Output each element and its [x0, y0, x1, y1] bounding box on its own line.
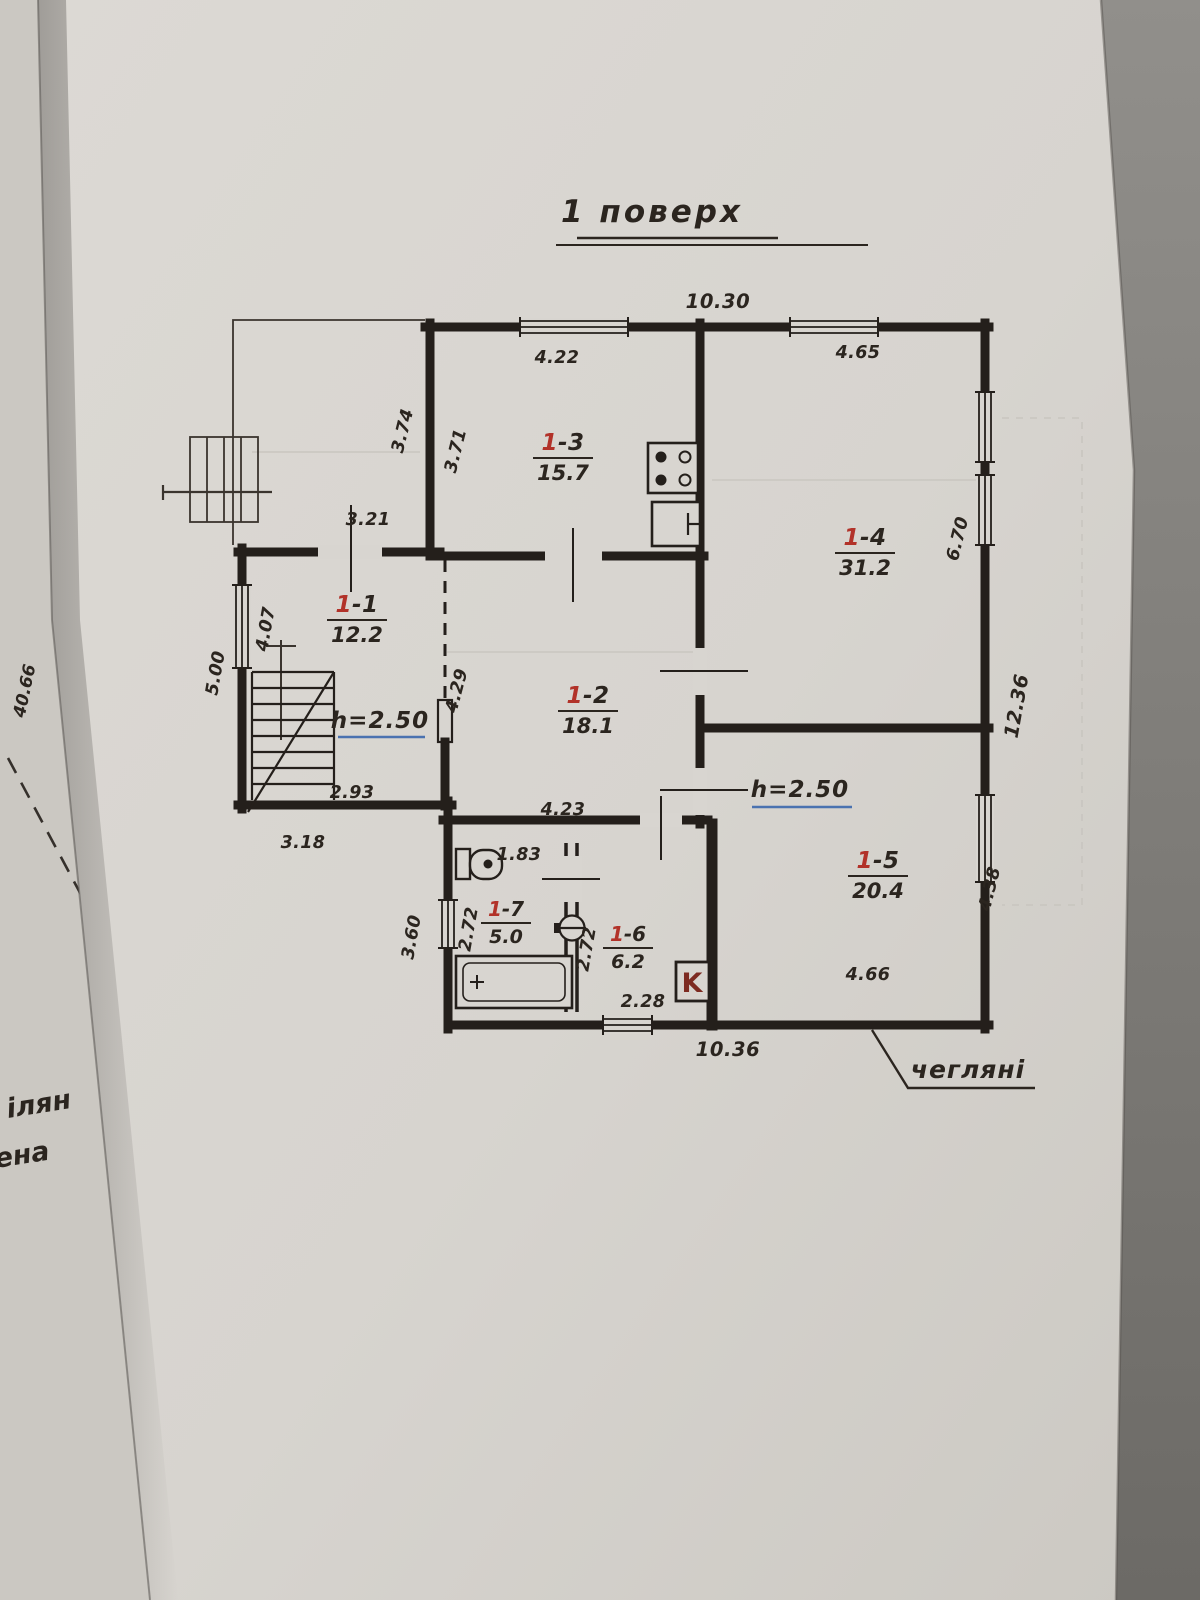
dim-room6-width: 2.28 — [621, 992, 666, 1012]
boiler-letter: K — [682, 968, 704, 999]
room-id: 1-1 — [335, 592, 378, 618]
room-area: 20.4 — [852, 879, 904, 903]
window-room4-right-upper — [975, 392, 995, 462]
dim-room2-width: 4.23 — [540, 800, 586, 820]
window-room4-top — [790, 317, 878, 337]
dim-bath-door: 1.83 — [497, 845, 542, 865]
dim-bottom-total: 10.36 — [696, 1038, 761, 1061]
floor-plan-drawing: 40.66 ілян ена 1 поверх — [0, 0, 1200, 1600]
dim-top-total: 10.30 — [686, 290, 751, 313]
window-room4-right-lower — [975, 475, 995, 545]
room-id: 1-3 — [541, 430, 584, 456]
dim-room1-width: 2.93 — [330, 783, 375, 803]
material-text: чегляні — [911, 1055, 1025, 1084]
room-id: 1-2 — [566, 683, 609, 709]
room-area: 12.2 — [331, 623, 383, 647]
stove-icon — [648, 443, 698, 493]
dim-room3-width: 4.22 — [534, 348, 580, 368]
photo-of-floor-plan-document: 40.66 ілян ена 1 поверх — [0, 0, 1200, 1600]
room-area: 18.1 — [562, 714, 614, 738]
toilet-icon — [456, 849, 502, 879]
paper-page — [38, 0, 1134, 1600]
window-room6-bottom — [603, 1015, 652, 1035]
kitchen-sink-icon — [652, 502, 701, 546]
dim-left-wing-bottom: 3.18 — [281, 833, 326, 853]
svg-text:h=2.50: h=2.50 — [751, 777, 849, 803]
title-text: 1 поверх — [561, 194, 743, 230]
dim-room1-door-span: 3.21 — [346, 510, 391, 530]
height-note-room1: h=2.50 — [331, 708, 429, 737]
room-label-1-4: 1-4 31.2 — [835, 525, 895, 580]
room-area: 15.7 — [537, 461, 589, 485]
height-note-room5: h=2.50 — [751, 777, 852, 807]
window-bath-left — [438, 900, 458, 948]
room-label-1-5: 1-5 20.4 — [848, 848, 908, 903]
room-id: 1-6 — [610, 922, 646, 946]
room-label-1-1: 1-1 12.2 — [327, 592, 387, 647]
dim-room4-width: 4.65 — [835, 343, 881, 363]
room-label-1-3: 1-3 15.7 — [533, 430, 593, 485]
room-area: 6.2 — [611, 951, 645, 973]
room-id: 1-7 — [488, 897, 524, 921]
svg-text:h=2.50: h=2.50 — [331, 708, 429, 734]
room-id: 1-4 — [843, 525, 886, 551]
dim-room5-width: 4.66 — [845, 965, 891, 985]
room-area: 5.0 — [489, 926, 523, 948]
window-room3-top — [520, 317, 628, 337]
window-room1-left — [232, 585, 252, 668]
room-id: 1-5 — [856, 848, 899, 874]
boiler-icon: K — [676, 962, 709, 1001]
room-label-1-2: 1-2 18.1 — [558, 683, 618, 738]
bathtub-icon — [456, 956, 572, 1008]
room-area: 31.2 — [839, 556, 891, 580]
